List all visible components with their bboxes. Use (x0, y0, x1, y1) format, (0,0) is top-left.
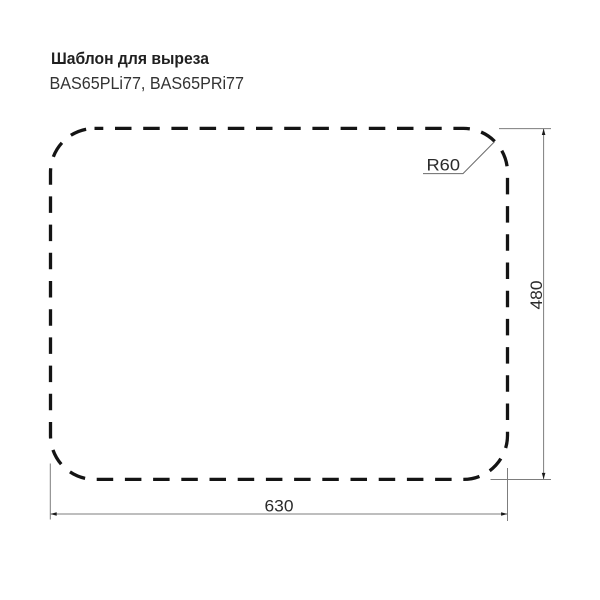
svg-text:Шаблон для выреза: Шаблон для выреза (51, 49, 209, 68)
svg-text:R60: R60 (427, 156, 461, 175)
svg-text:630: 630 (265, 497, 294, 516)
svg-text:BAS65PLi77, BAS65PRi77: BAS65PLi77, BAS65PRi77 (50, 73, 245, 93)
svg-text:480: 480 (527, 281, 546, 310)
